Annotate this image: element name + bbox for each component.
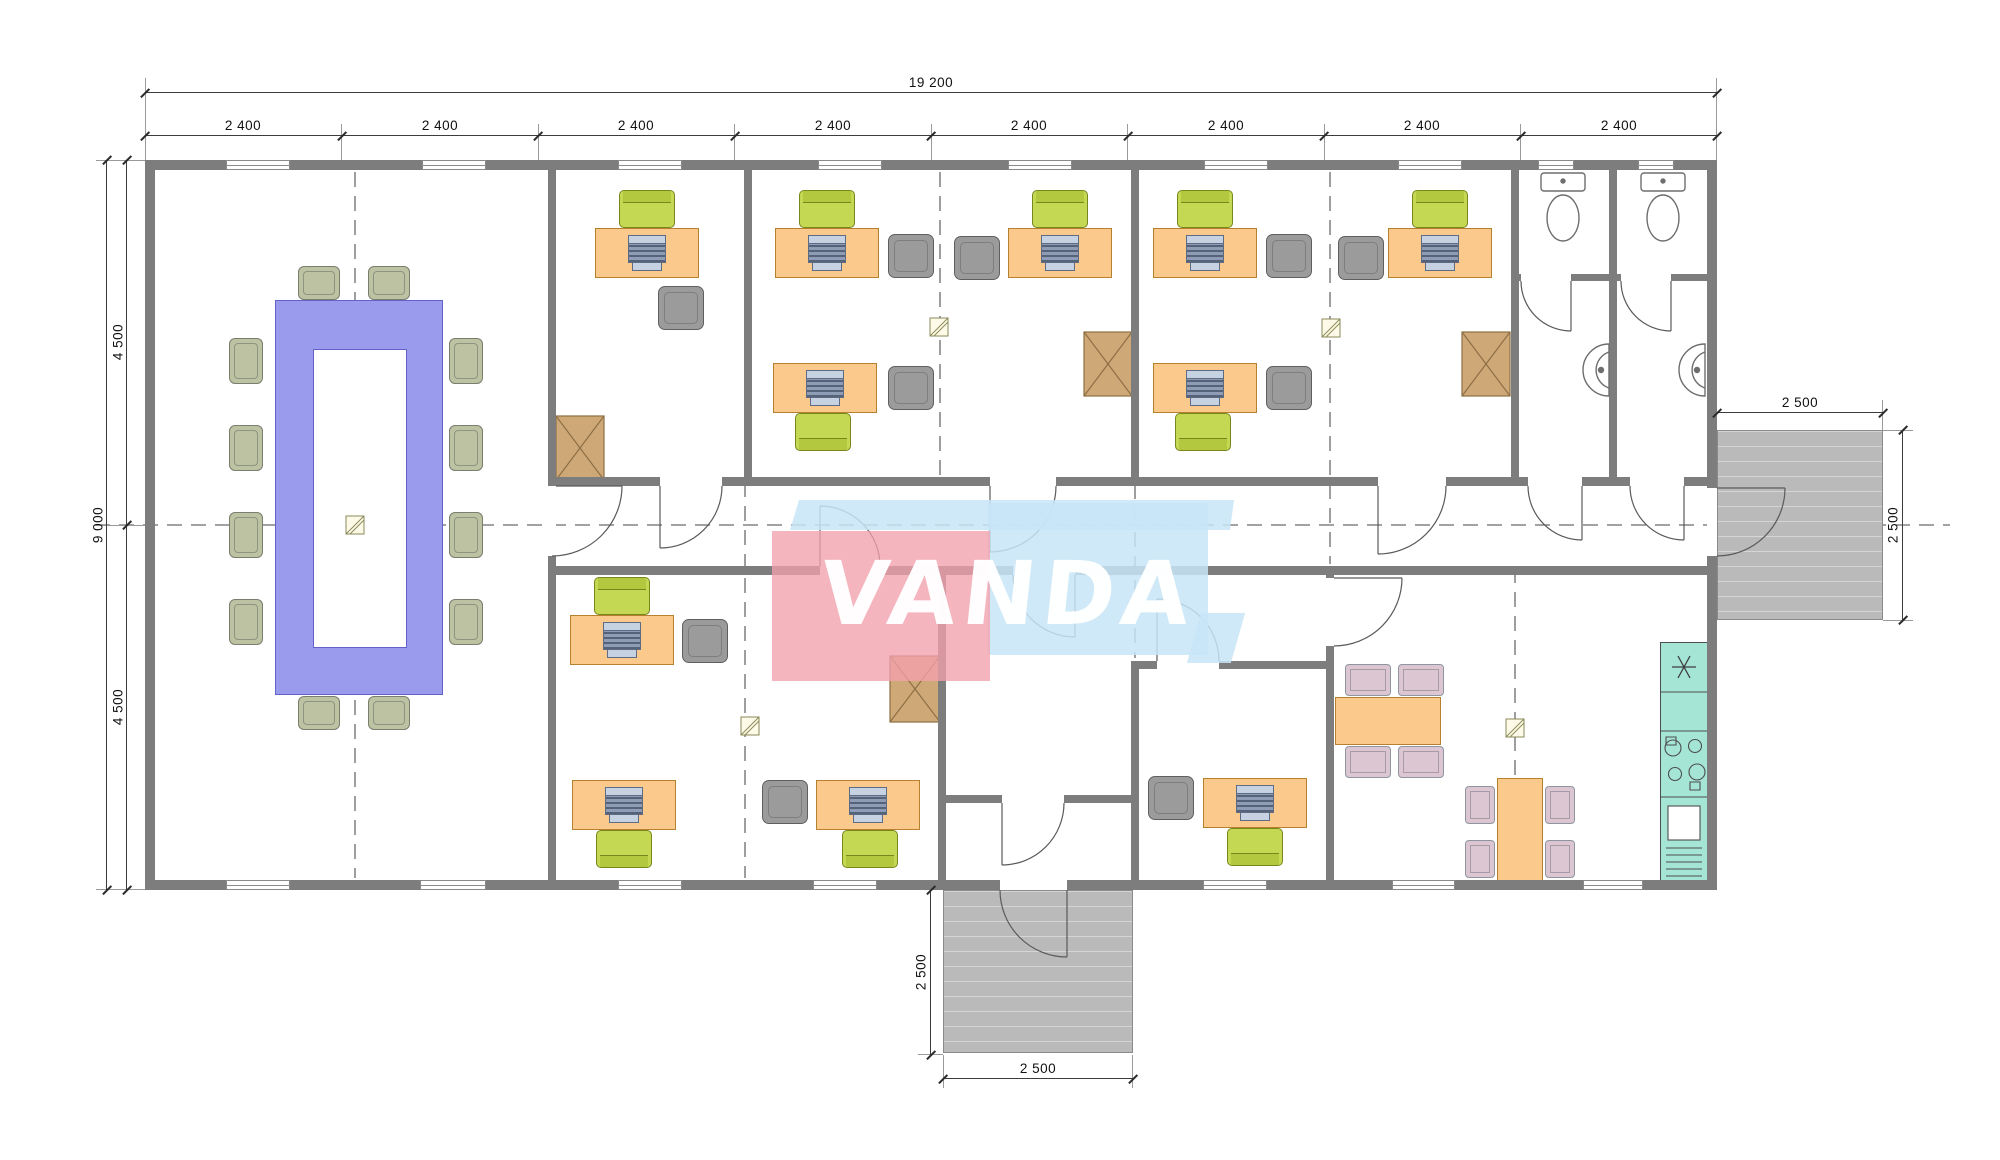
sink-icon <box>1679 344 1705 396</box>
stove-sink-icon <box>1665 737 1705 790</box>
dim-left-upper: 4 500 <box>111 324 126 360</box>
dim-bottom-porch-depth: 2 500 <box>914 954 929 990</box>
grid-marker <box>346 318 1524 737</box>
dim-left-lower: 4 500 <box>111 689 126 725</box>
fridge-snowflake-icon <box>1672 656 1696 678</box>
linework-layer <box>0 0 2000 1160</box>
dim-right-porch-width: 2 500 <box>1782 395 1818 410</box>
dim-bottom-porch-width: 2 500 <box>1020 1061 1056 1076</box>
dim-module: 2 400 <box>1404 118 1440 133</box>
dim-module: 2 400 <box>1601 118 1637 133</box>
dim-left-total: 9 000 <box>91 507 106 543</box>
toilet-icon <box>1641 173 1685 241</box>
dim-total-width: 19 200 <box>909 75 953 90</box>
toilet-icon <box>1541 173 1585 241</box>
sink-icon <box>1583 344 1609 396</box>
oven-cabinet-icon <box>1666 806 1702 876</box>
dim-right-porch-depth: 2 500 <box>1886 507 1901 543</box>
dim-module: 2 400 <box>1011 118 1047 133</box>
dim-module: 2 400 <box>815 118 851 133</box>
dim-module: 2 400 <box>618 118 654 133</box>
dim-module: 2 400 <box>225 118 261 133</box>
dim-module: 2 400 <box>422 118 458 133</box>
dim-module: 2 400 <box>1208 118 1244 133</box>
floor-plan: VANDA 19 200 2 400 2 400 2 400 2 400 2 4… <box>0 0 2000 1160</box>
